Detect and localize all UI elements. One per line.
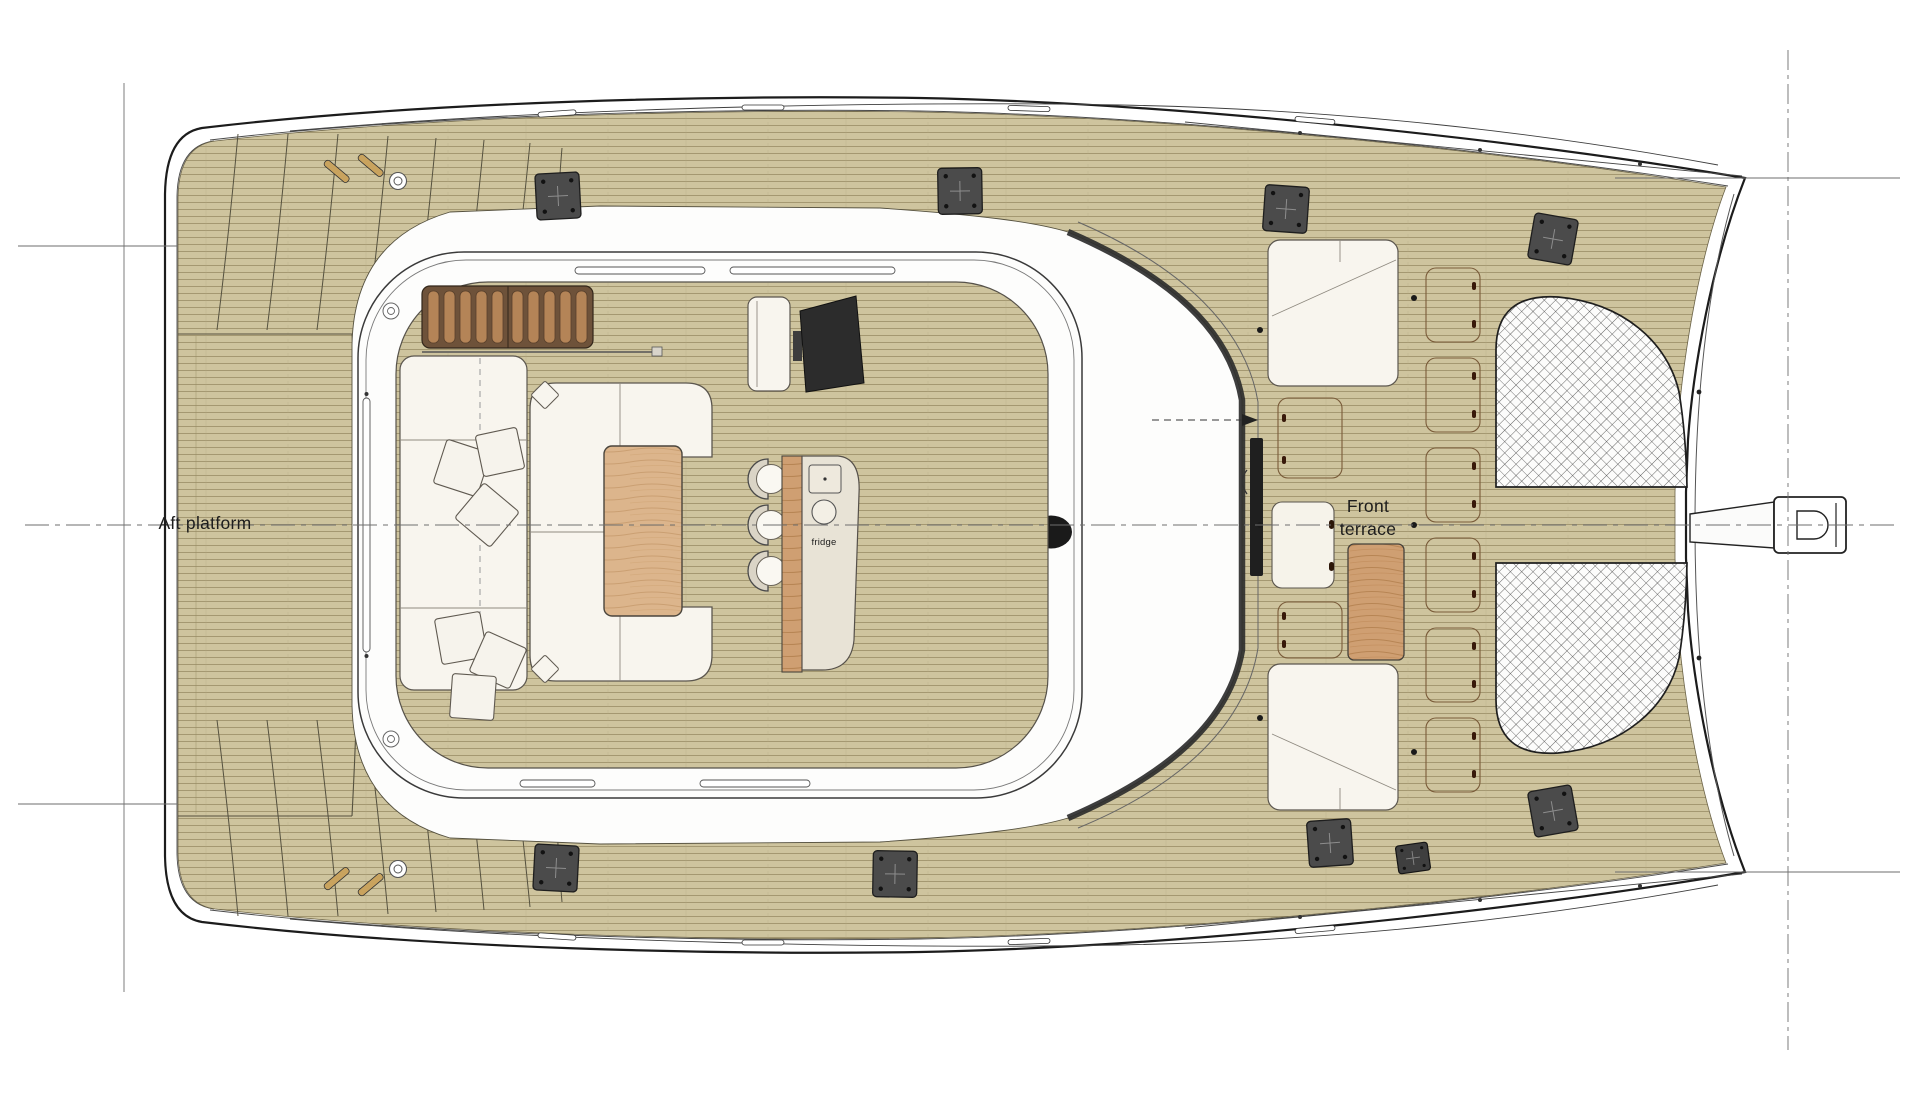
coffee-table [604,446,682,616]
tv-bench [748,297,790,391]
front-terrace-label-line2: terrace [1340,519,1397,539]
front-terrace-label-line1: Front [1347,496,1389,516]
terrace-table [1348,544,1404,660]
sliding-door-track [1250,438,1263,576]
sunpad-bottom [1268,664,1398,810]
bar-unit: fridge [782,456,859,672]
fridge-label: fridge [812,537,837,548]
sunpad-top [1268,240,1398,386]
aft-platform-label: Aft platform [158,513,251,533]
catamaran-deck-plan: fridge [0,0,1920,1100]
windlass-plate [1395,842,1431,874]
terrace-locker-seat [1272,502,1334,588]
deck-plan-page: fridge [0,0,1920,1100]
bar-round-sink [812,500,836,524]
